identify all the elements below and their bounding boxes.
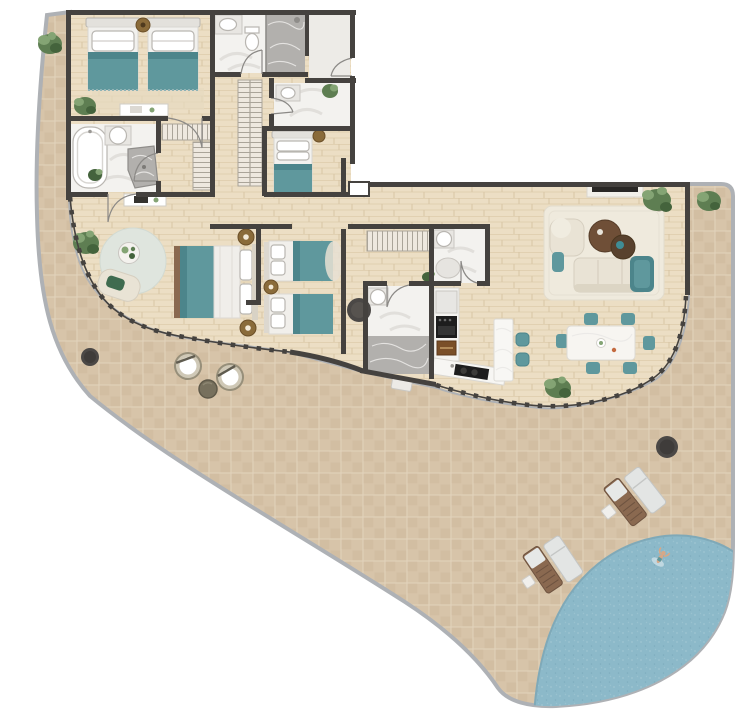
- tall-cabinets: [434, 288, 459, 361]
- floor-plan-svg: [0, 0, 747, 712]
- terrace-spotlight: [656, 436, 678, 458]
- plant-indoor: [74, 97, 96, 115]
- dining-chair: [623, 362, 637, 374]
- shower-head-icon: [294, 17, 300, 23]
- side-table: [119, 243, 140, 264]
- sink: [371, 290, 386, 305]
- sink: [437, 232, 452, 247]
- plant-small: [322, 84, 338, 98]
- hall-wardrobe: [238, 80, 262, 186]
- bathroom-shower-top: [213, 13, 305, 73]
- dining-chair: [621, 313, 635, 325]
- sink: [281, 88, 295, 99]
- dining-chair: [556, 334, 568, 348]
- twin-bed: [264, 241, 343, 281]
- dining-chair: [584, 313, 598, 325]
- shower-pan: [436, 258, 460, 278]
- sink: [220, 19, 237, 31]
- floor-plan-stage: [0, 0, 747, 712]
- twin-bed: [146, 18, 200, 90]
- terrace-spotlight: [81, 348, 99, 366]
- terrace-plant-right-strip: [697, 191, 721, 211]
- dining-chair: [643, 336, 655, 350]
- entry-vestibule: [309, 13, 352, 78]
- corridor-wardrobe: [367, 231, 430, 251]
- dresser: [120, 104, 168, 116]
- tub-bathroom: [71, 124, 158, 192]
- marble-shower-bathroom: [368, 285, 429, 374]
- sink: [110, 127, 127, 144]
- single-bed: [272, 131, 314, 194]
- bar-stool: [516, 353, 529, 366]
- guest-bathroom: [271, 83, 351, 126]
- dining-chair: [586, 362, 600, 374]
- nightstand: [313, 130, 325, 142]
- corner-shower: [128, 146, 158, 188]
- toilet: [245, 27, 259, 51]
- walk-in-shower: [266, 13, 305, 73]
- twin-bed: [264, 294, 333, 334]
- bar-stool: [516, 333, 529, 346]
- twin-bed: [86, 18, 140, 90]
- marble-shower: [368, 336, 429, 374]
- dining-table: [567, 326, 635, 360]
- kitchen-island: [494, 319, 513, 381]
- tv: [592, 187, 638, 192]
- shaft-column: [349, 182, 369, 196]
